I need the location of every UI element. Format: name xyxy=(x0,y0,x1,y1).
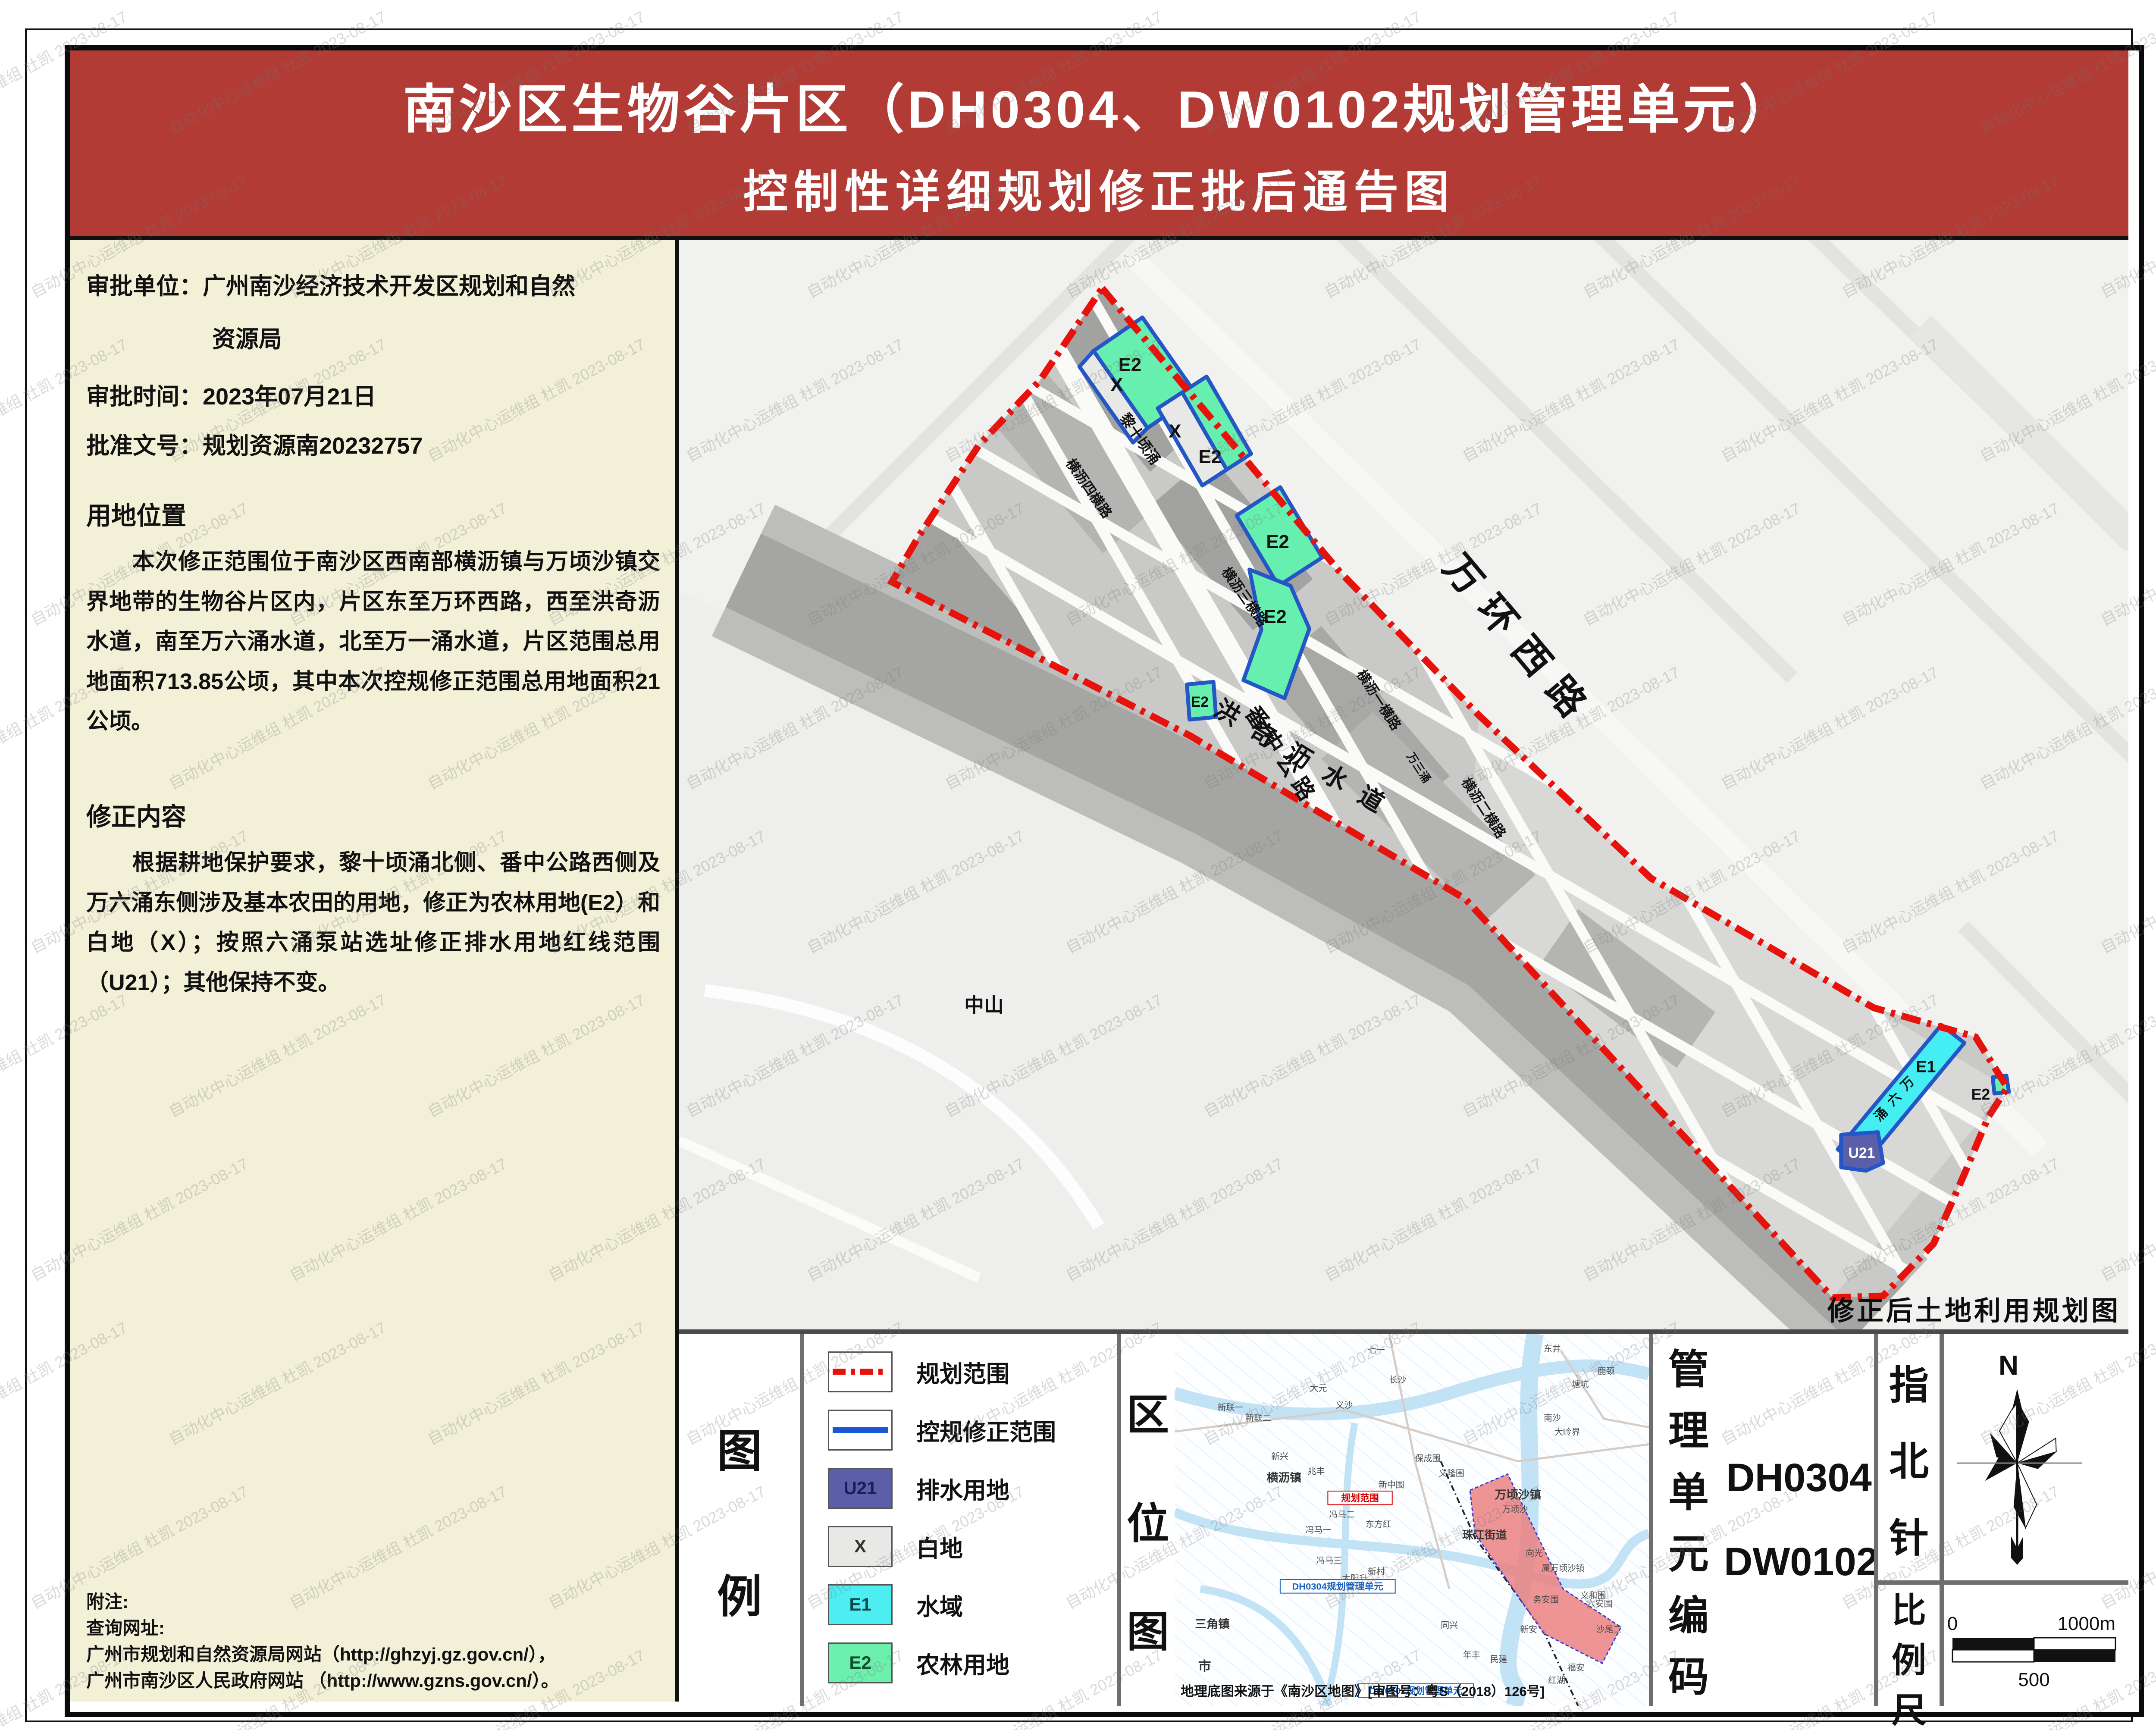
inset-place-label: 义和围 xyxy=(1580,1591,1606,1601)
inset-callout-label: 规划范围 xyxy=(1341,1493,1379,1504)
inset-place-label: 三角镇 xyxy=(1195,1617,1230,1631)
legend-swatch-U21: U21 xyxy=(828,1468,893,1509)
inset-place-label: 年丰 xyxy=(1463,1651,1480,1660)
map-label: X xyxy=(1169,420,1181,442)
map-label: X xyxy=(1110,374,1123,395)
inset-place-label: 福安 xyxy=(1567,1663,1585,1673)
legend: 规划范围控规修正范围U21排水用地X白地E1水域E2农林用地 xyxy=(804,1334,1117,1706)
legend-item: 控规修正范围 xyxy=(828,1408,1056,1451)
main-frame: 南沙区生物谷片区（DH0304、DW0102规划管理单元） 控制性详细规划修正批… xyxy=(65,45,2144,1717)
inset-place-label: 七一 xyxy=(1368,1345,1385,1355)
scale-cell: 0 1000m 500 xyxy=(1940,1587,2128,1706)
inset-place-label: 义沙 xyxy=(1335,1401,1353,1410)
approval-unit-label: 审批单位： xyxy=(86,273,203,299)
approval-unit-row: 审批单位：广州南沙经济技术开发区规划和自然 xyxy=(86,267,660,301)
title-line-2: 控制性详细规划修正批后通告图 xyxy=(70,155,2128,220)
inset-place-label: 万顷沙 xyxy=(1502,1505,1528,1514)
scale-title: 比例尺 xyxy=(1878,1583,1940,1706)
unit-codes: DH0304 DW0102 xyxy=(1724,1334,1874,1706)
map-label: E2 xyxy=(1266,531,1289,552)
approval-doc-label: 批准文号： xyxy=(86,433,203,459)
approval-time-value: 2023年07月21日 xyxy=(203,384,376,410)
map-label: E1 xyxy=(1916,1058,1936,1076)
legend-swatch-redline xyxy=(828,1351,893,1392)
map-label: E2 xyxy=(1191,694,1209,710)
inset-place-label: 新兴 xyxy=(1271,1452,1288,1461)
notes-line: 广州市南沙区人民政府网站 （http://www.gzns.gov.cn/）。 xyxy=(86,1668,660,1694)
legend-label: 白地 xyxy=(916,1529,963,1564)
approval-unit-value: 广州南沙经济技术开发区规划和自然 xyxy=(203,273,575,299)
inset-place-label: 新村 xyxy=(1368,1567,1385,1576)
legend-item: E2农林用地 xyxy=(828,1641,1009,1684)
bottom-strip: 图例 规划范围控规修正范围U21排水用地X白地E1水域E2农林用地 区位图 xyxy=(679,1329,2128,1706)
inset-place-label: 大岭界 xyxy=(1554,1428,1580,1437)
inset-place-label: 红湖 xyxy=(1548,1676,1565,1686)
inset-place-label: 新中围 xyxy=(1379,1480,1404,1490)
notes-block: 附注: 查询网址: 广州市规划和自然资源局网站（http://ghzyj.gz.… xyxy=(86,1589,660,1694)
compass-cell: N xyxy=(1940,1334,2128,1583)
map-label: E2 xyxy=(1198,446,1221,467)
inset-place-label: 民建 xyxy=(1490,1655,1507,1664)
compass-rose: N xyxy=(1940,1334,2128,1583)
approval-time-row: 审批时间：2023年07月21日 xyxy=(86,377,660,411)
inset-place-label: 义隆围 xyxy=(1438,1469,1464,1478)
legend-label: 排水用地 xyxy=(916,1471,1009,1505)
inset-place-label: 鹿颈 xyxy=(1598,1367,1615,1376)
inset-place-label: 东井 xyxy=(1544,1345,1561,1354)
approval-doc-value: 规划资源南20232757 xyxy=(203,433,423,459)
inset-place-label: 冯马一 xyxy=(1306,1526,1332,1535)
inset-place-label: 珠江街道 xyxy=(1462,1529,1507,1542)
info-panel: 审批单位：广州南沙经济技术开发区规划和自然 资源局 审批时间：2023年07月2… xyxy=(70,240,679,1702)
inset-place-label: 新联一 xyxy=(1218,1403,1244,1413)
section-revision-body: 根据耕地保护要求，黎十顷涌北侧、番中公路西侧及万六涌东侧涉及基本农田的用地，修正… xyxy=(86,843,660,1003)
approval-time-label: 审批时间： xyxy=(86,384,203,410)
section-revision-title: 修正内容 xyxy=(86,796,660,833)
map-label: 中山 xyxy=(964,994,1003,1016)
legend-item: E1水域 xyxy=(828,1583,963,1626)
legend-label: 规划范围 xyxy=(916,1355,1009,1389)
scale-tick-500: 500 xyxy=(2018,1669,2049,1690)
inset-place-label: 新联二 xyxy=(1245,1413,1271,1423)
location-inset-map: 七一东井鹿颈塘坑大元长沙义沙南沙大岭界新联一新联二新兴横沥镇兆丰保成围义隆围新中… xyxy=(1175,1334,1649,1706)
map-label: E2 xyxy=(1119,354,1141,375)
inset-place-label: 向光 xyxy=(1526,1548,1543,1558)
legend-item: U21排水用地 xyxy=(828,1467,1009,1510)
map-caption: 修正后土地利用规划图 xyxy=(1827,1289,2121,1328)
inset-place-label: 大元 xyxy=(1310,1384,1327,1393)
approval-unit-value2: 资源局 xyxy=(212,320,660,354)
inset-callout-label: DH0304规划管理单元 xyxy=(1292,1581,1383,1592)
legend-label: 控规修正范围 xyxy=(916,1413,1056,1447)
inset-place-label: 市 xyxy=(1198,1659,1211,1674)
inset-caption: 地理底图来源于《南沙区地图》[审图号：粤S（2018）126号] xyxy=(1181,1680,1545,1700)
notes-line: 查询网址: xyxy=(86,1615,660,1642)
compass-title: 指北针 xyxy=(1878,1334,1940,1583)
inset-place-label: 冯马二 xyxy=(1329,1510,1355,1520)
scale-bar: 0 1000m 500 xyxy=(1940,1587,2128,1706)
legend-title: 图例 xyxy=(679,1334,800,1706)
legend-swatch-X: X xyxy=(828,1526,893,1567)
section-location-title: 用地位置 xyxy=(86,495,660,532)
inset-place-label: 塘坑 xyxy=(1572,1379,1589,1389)
legend-item: X白地 xyxy=(828,1525,963,1568)
inset-place-label: 属万顷沙镇 xyxy=(1542,1564,1584,1573)
map-label: U21 xyxy=(1848,1145,1875,1161)
scale-tick-0: 0 xyxy=(1947,1613,1958,1634)
inset-place-label: 东方红 xyxy=(1366,1520,1391,1529)
inset-place-label: 横沥镇 xyxy=(1267,1471,1302,1484)
inset-place-label: 务安围 xyxy=(1533,1595,1559,1605)
title-band: 南沙区生物谷片区（DH0304、DW0102规划管理单元） 控制性详细规划修正批… xyxy=(70,50,2128,240)
inset-place-label: 新安 xyxy=(1520,1625,1537,1634)
unit-code-dw0102: DW0102 xyxy=(1724,1539,1874,1585)
approval-doc-row: 批准文号：规划资源南20232757 xyxy=(86,426,660,461)
map-label: E2 xyxy=(1971,1086,1990,1103)
inset-place-label: 沙尾二 xyxy=(1596,1625,1622,1634)
inset-place-label: 同兴 xyxy=(1441,1621,1458,1630)
notes-line: 附注: xyxy=(86,1589,660,1615)
legend-label: 水域 xyxy=(916,1588,963,1622)
inset-place-label: 长沙 xyxy=(1389,1376,1407,1385)
legend-swatch-blueline xyxy=(828,1410,893,1451)
legend-swatch-E2: E2 xyxy=(828,1642,893,1683)
land-use-map: E2XXE2E2E2E2E1U21E2万六涌黎十顷涌横沥四横路横沥三横路番中公路… xyxy=(679,240,2128,1329)
section-location-body: 本次修正范围位于南沙区西南部横沥镇与万顷沙镇交界地带的生物谷片区内，片区东至万环… xyxy=(86,542,660,742)
legend-item: 规划范围 xyxy=(828,1350,1009,1393)
inset-place-label: 冯马三 xyxy=(1316,1556,1342,1566)
location-inset-canvas: 七一东井鹿颈塘坑大元长沙义沙南沙大岭界新联一新联二新兴横沥镇兆丰保成围义隆围新中… xyxy=(1175,1334,1649,1706)
legend-swatch-E1: E1 xyxy=(828,1584,893,1625)
title-line-1: 南沙区生物谷片区（DH0304、DW0102规划管理单元） xyxy=(70,67,2128,143)
scale-tick-1000: 1000m xyxy=(2057,1613,2115,1634)
notice-sheet: 南沙区生物谷片区（DH0304、DW0102规划管理单元） 控制性详细规划修正批… xyxy=(0,0,2156,1730)
inset-place-label: 六安围 xyxy=(1587,1599,1613,1609)
inset-place-label: 兆丰 xyxy=(1308,1467,1325,1476)
inset-place-label: 万顷沙镇 xyxy=(1495,1489,1542,1501)
compass-north-letter: N xyxy=(1999,1350,2018,1381)
inset-place-label: 保成围 xyxy=(1415,1454,1441,1464)
inset-place-label: 南沙 xyxy=(1544,1413,1561,1423)
unit-code-title: 管理单元编码 xyxy=(1653,1334,1724,1706)
legend-label: 农林用地 xyxy=(916,1646,1009,1680)
unit-code-dh0304: DH0304 xyxy=(1724,1455,1874,1501)
inset-title: 区位图 xyxy=(1121,1334,1175,1706)
notes-line: 广州市规划和自然资源局网站（http://ghzyj.gz.gov.cn/）， xyxy=(86,1642,660,1668)
land-use-map-canvas: E2XXE2E2E2E2E1U21E2万六涌黎十顷涌横沥四横路横沥三横路番中公路… xyxy=(679,240,2128,1329)
